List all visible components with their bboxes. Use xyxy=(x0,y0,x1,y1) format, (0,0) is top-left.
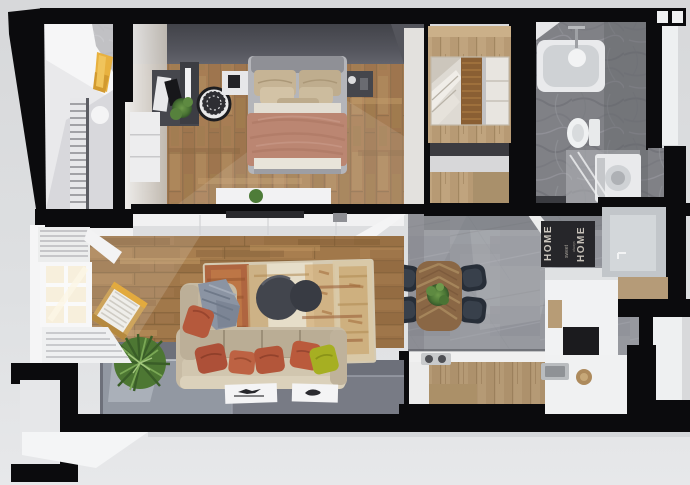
svg-text:HOME: HOME xyxy=(543,225,554,261)
svg-text:always: always xyxy=(572,241,576,252)
svg-text:HOME: HOME xyxy=(576,226,587,262)
svg-text:sweet: sweet xyxy=(564,244,570,258)
